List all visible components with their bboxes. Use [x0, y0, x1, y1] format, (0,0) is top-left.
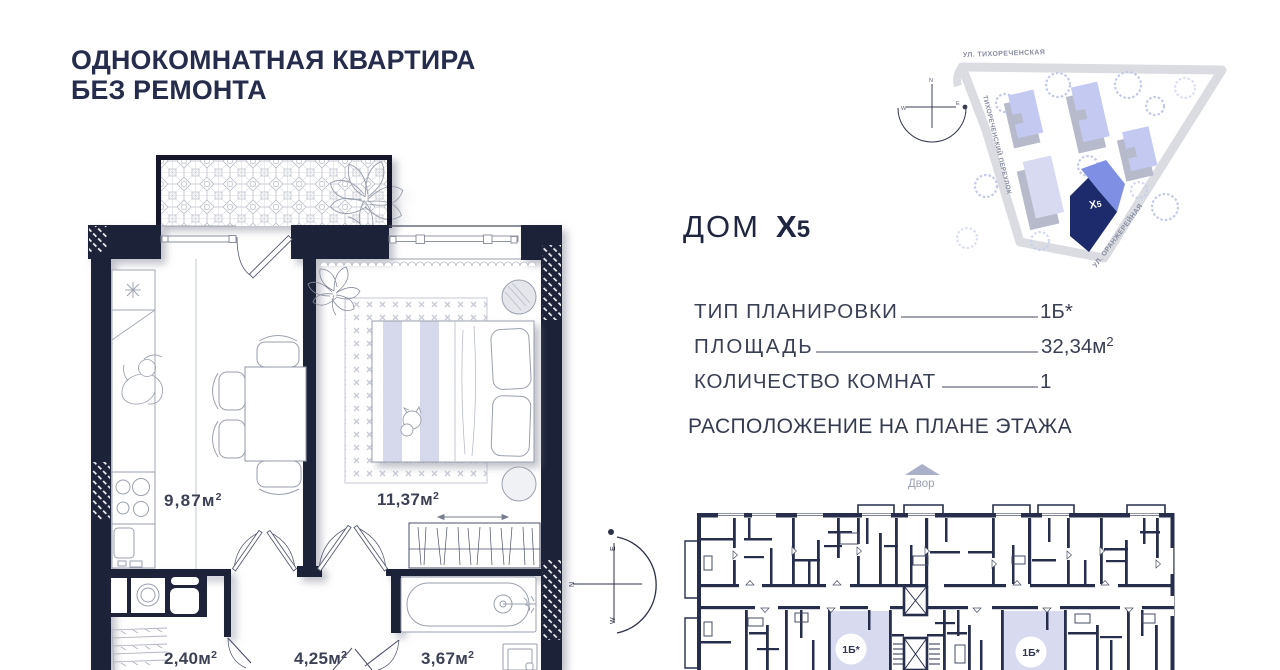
svg-text:W: W	[610, 617, 617, 624]
svg-text:ОДНОКОМНАТНАЯ КВАРТИРА: ОДНОКОМНАТНАЯ КВАРТИРА	[71, 45, 476, 75]
svg-text:2,40м2: 2,40м2	[164, 649, 217, 668]
svg-text:32,34м2: 32,34м2	[1041, 334, 1114, 358]
svg-text:ТИП ПЛАНИРОВКИ: ТИП ПЛАНИРОВКИ	[694, 300, 898, 323]
svg-text:1Б*: 1Б*	[1040, 300, 1073, 323]
svg-text:ПЛОЩАДЬ: ПЛОЩАДЬ	[694, 335, 814, 358]
svg-text:Двор: Двор	[908, 478, 935, 490]
svg-text:1: 1	[1040, 370, 1051, 393]
svg-text:БЕЗ РЕМОНТА: БЕЗ РЕМОНТА	[71, 75, 267, 105]
svg-text:N: N	[569, 582, 576, 587]
svg-text:КОЛИЧЕСТВО КОМНАТ: КОЛИЧЕСТВО КОМНАТ	[694, 370, 936, 393]
svg-text:9,87м2: 9,87м2	[164, 491, 223, 510]
svg-text:3,67м2: 3,67м2	[421, 649, 474, 668]
svg-text:W: W	[901, 106, 907, 112]
svg-text:РАСПОЛОЖЕНИЕ НА ПЛАНЕ ЭТАЖА: РАСПОЛОЖЕНИЕ НА ПЛАНЕ ЭТАЖА	[688, 415, 1072, 438]
svg-text:E: E	[956, 101, 960, 107]
svg-text:ДОМ: ДОМ	[683, 209, 760, 244]
svg-text:E: E	[610, 546, 617, 551]
svg-text:N: N	[929, 78, 933, 84]
svg-text:1Б*: 1Б*	[1022, 647, 1040, 659]
svg-text:4,25м2: 4,25м2	[294, 649, 347, 668]
svg-text:11,37м2: 11,37м2	[377, 490, 439, 509]
svg-text:1Б*: 1Б*	[842, 644, 860, 656]
